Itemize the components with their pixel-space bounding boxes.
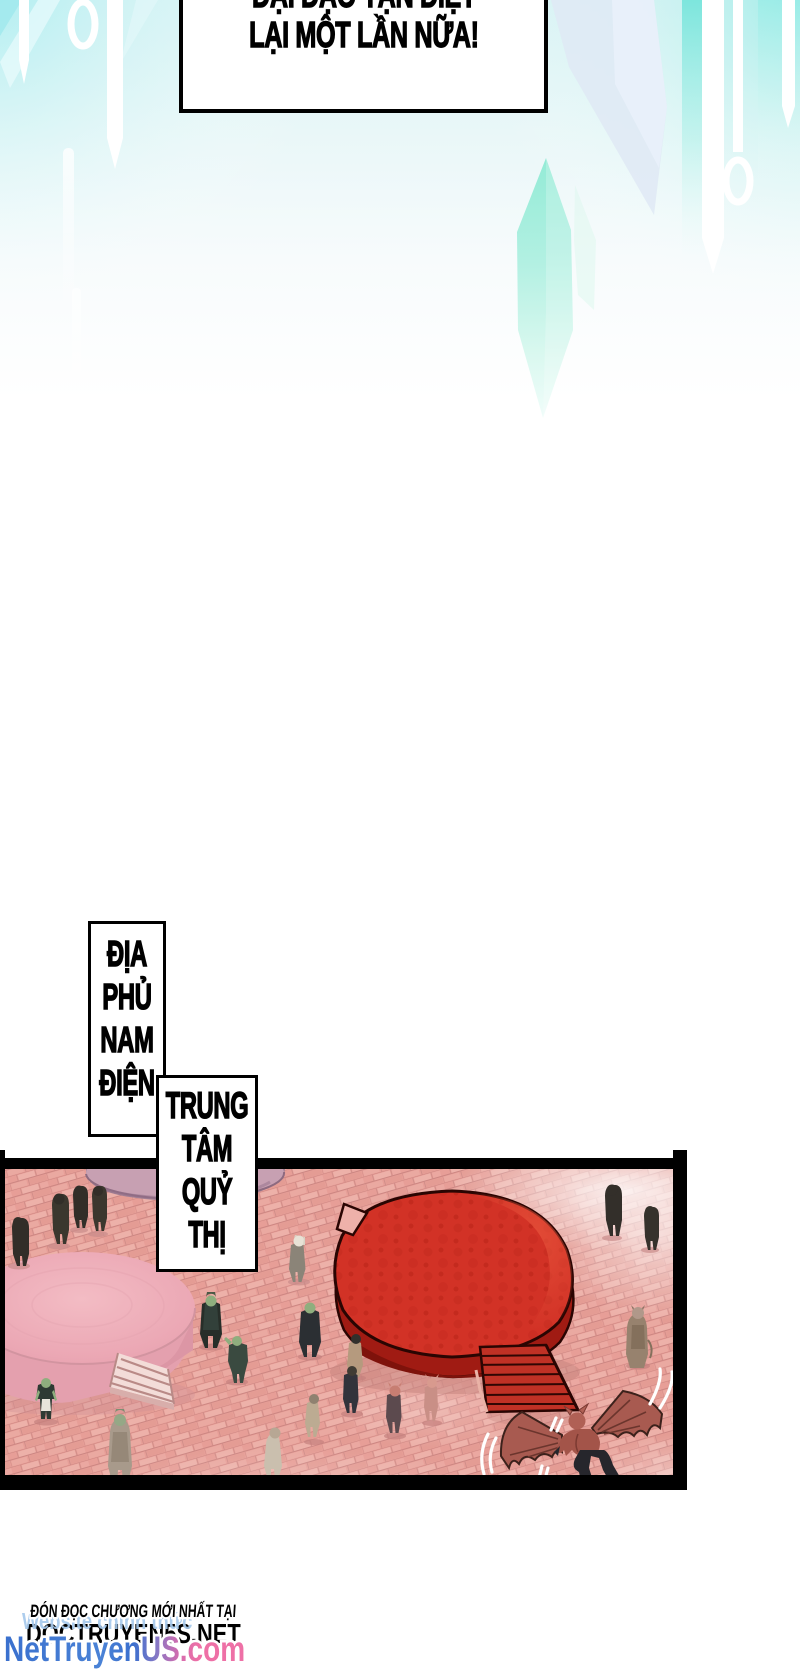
svg-text:ĐÓN ĐỌC CHƯƠNG MỚI NHẤT TẠI: ĐÓN ĐỌC CHƯƠNG MỚI NHẤT TẠI [30, 1601, 237, 1622]
svg-text:NetTruyenUS.com: NetTruyenUS.com [4, 1629, 245, 1669]
